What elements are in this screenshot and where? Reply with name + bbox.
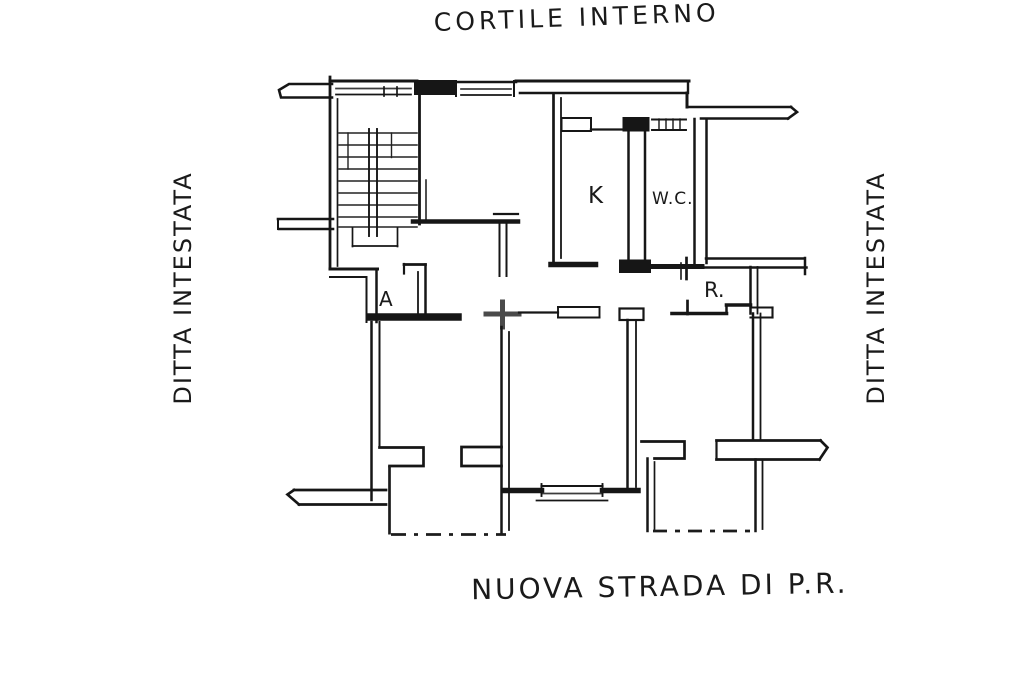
scanned-floor-plan-page: CORTILE INTERNO NUOVA STRADA DI P.R. DIT… (0, 0, 1024, 682)
stair-landing (353, 228, 398, 247)
cross-wall-junction (486, 302, 519, 327)
label-ditta-intestata-left: DITTA INTESTATA (169, 171, 197, 404)
label-nuova-strada: NUOVA STRADA DI P.R. (471, 567, 849, 607)
interior-walls (330, 94, 807, 534)
room-label-wc: W.C. (652, 189, 694, 209)
room-label-anteroom: A (379, 287, 393, 311)
staircase (330, 77, 426, 269)
label-cortile-interno: CORTILE INTERNO (433, 0, 720, 37)
room-label-closet: R. (704, 278, 725, 302)
room-label-kitchen: K (588, 183, 604, 209)
wc-window (652, 119, 686, 130)
surrounding-labels: CORTILE INTERNO NUOVA STRADA DI P.R. DIT… (169, 0, 890, 606)
room-labels: K W.C. A R. (379, 183, 725, 311)
floor-plan-drawing: CORTILE INTERNO NUOVA STRADA DI P.R. DIT… (0, 0, 1024, 682)
bottom-window (537, 484, 608, 501)
label-ditta-intestata-right: DITTA INTESTATA (862, 171, 890, 404)
stair-treads (339, 133, 417, 227)
